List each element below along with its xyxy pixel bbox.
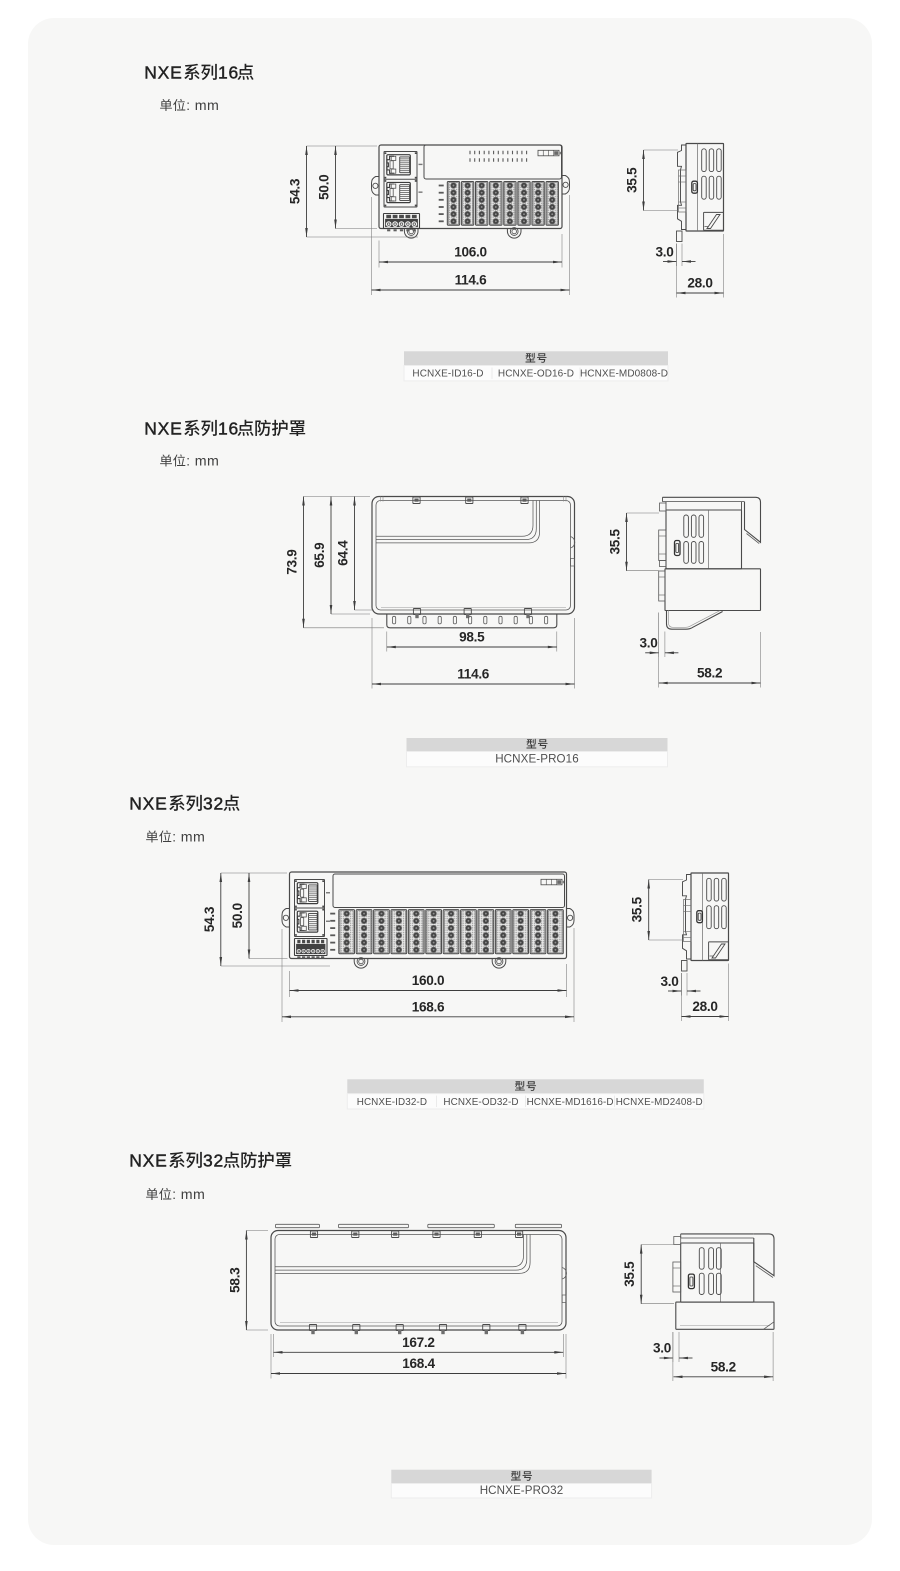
svg-text:HCNXE-MD1616-D: HCNXE-MD1616-D [527, 1097, 614, 1108]
svg-text::: : [172, 1187, 176, 1202]
svg-text:106.0: 106.0 [454, 245, 487, 260]
svg-text:65.9: 65.9 [312, 542, 327, 568]
svg-text::: : [186, 98, 190, 113]
svg-text:98.5: 98.5 [459, 630, 485, 645]
svg-text:mm: mm [181, 1187, 205, 1203]
svg-text::: : [172, 830, 176, 845]
svg-text:73.9: 73.9 [285, 549, 300, 575]
svg-text:HCNXE-ID16-D: HCNXE-ID16-D [412, 369, 483, 380]
svg-text:NXE: NXE [144, 419, 182, 439]
svg-text:54.3: 54.3 [202, 906, 217, 932]
svg-text:mm: mm [195, 454, 219, 470]
svg-text:160.0: 160.0 [412, 973, 445, 988]
svg-text:58.2: 58.2 [697, 666, 723, 681]
svg-text:114.6: 114.6 [457, 667, 490, 682]
svg-text:28.0: 28.0 [692, 999, 717, 1014]
svg-text:3.0: 3.0 [640, 636, 658, 651]
svg-text:168.6: 168.6 [412, 999, 445, 1014]
svg-text:58.3: 58.3 [227, 1267, 242, 1293]
svg-text:28.0: 28.0 [687, 276, 712, 291]
svg-text:167.2: 167.2 [402, 1335, 435, 1350]
svg-text:HCNXE-OD32-D: HCNXE-OD32-D [443, 1097, 518, 1108]
svg-text:3.0: 3.0 [653, 1341, 671, 1356]
svg-text:32: 32 [203, 794, 224, 814]
svg-text:HCNXE-MD2408-D: HCNXE-MD2408-D [616, 1097, 703, 1108]
svg-text:HCNXE-OD16-D: HCNXE-OD16-D [498, 369, 574, 380]
svg-text:35.5: 35.5 [608, 529, 623, 555]
svg-text:50.0: 50.0 [230, 903, 245, 928]
svg-text:54.3: 54.3 [288, 178, 303, 204]
svg-text:16: 16 [218, 419, 239, 439]
svg-text:HCNXE-PRO16: HCNXE-PRO16 [495, 753, 579, 766]
svg-text:NXE: NXE [144, 63, 182, 83]
svg-text:32: 32 [203, 1151, 224, 1171]
svg-text:35.5: 35.5 [622, 1261, 637, 1287]
svg-text:35.5: 35.5 [630, 896, 645, 922]
svg-text:HCNXE-PRO32: HCNXE-PRO32 [480, 1484, 564, 1497]
svg-text:HCNXE-ID32-D: HCNXE-ID32-D [357, 1097, 427, 1108]
svg-text:mm: mm [195, 98, 219, 114]
svg-text:3.0: 3.0 [661, 974, 679, 989]
svg-text:35.5: 35.5 [625, 167, 640, 193]
svg-text:3.0: 3.0 [656, 245, 674, 260]
svg-text:50.0: 50.0 [317, 175, 332, 200]
svg-text:16: 16 [218, 63, 239, 83]
svg-text::: : [186, 454, 190, 469]
svg-text:64.4: 64.4 [336, 540, 351, 566]
svg-text:mm: mm [181, 830, 205, 846]
svg-text:NXE: NXE [129, 1151, 167, 1171]
svg-text:168.4: 168.4 [402, 1356, 435, 1371]
svg-text:58.2: 58.2 [711, 1359, 737, 1374]
svg-text:114.6: 114.6 [455, 273, 488, 288]
svg-text:HCNXE-MD0808-D: HCNXE-MD0808-D [580, 369, 668, 380]
svg-text:NXE: NXE [129, 794, 167, 814]
